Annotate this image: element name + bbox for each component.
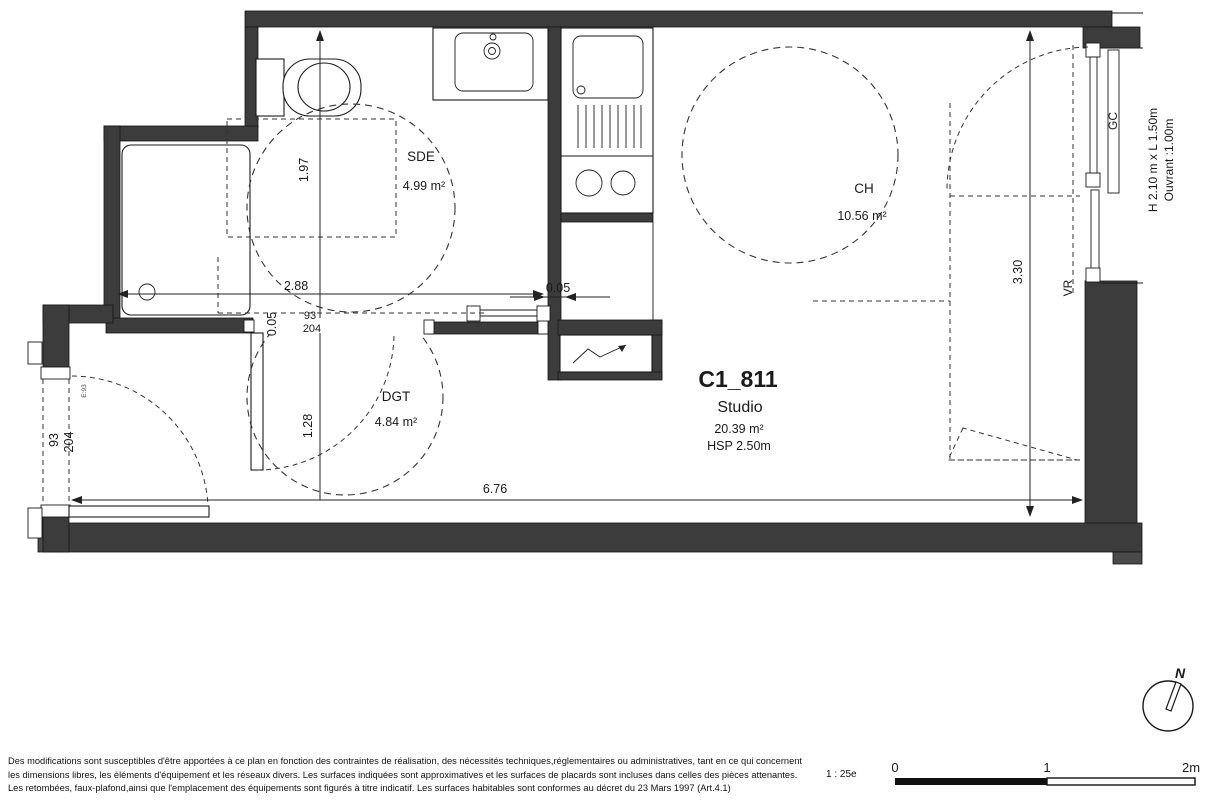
window-gc-label: GC bbox=[1106, 112, 1120, 130]
disclaimer-line3: Les retombées, faux-plafond,ainsi que l'… bbox=[8, 783, 731, 793]
dim-0-05-v: 0.05 bbox=[265, 312, 279, 336]
entry-door-frame-top bbox=[41, 367, 70, 379]
wall-band-above-ce bbox=[558, 320, 662, 335]
wall-band-under-kitchenette bbox=[561, 213, 653, 222]
dim-0-05-h: 0.05 bbox=[546, 281, 570, 295]
scale-ratio: 1 : 25e bbox=[826, 769, 857, 780]
window-handle-top bbox=[1086, 43, 1100, 57]
sde-door bbox=[251, 333, 394, 470]
disclaimer-line1: Des modifications sont susceptibles d'êt… bbox=[8, 756, 802, 766]
wall-entry-left-lower bbox=[43, 517, 69, 552]
wall-top bbox=[245, 11, 1112, 27]
kitchenette bbox=[561, 28, 653, 320]
scale-bar: 1 : 25e 0 1 2m bbox=[826, 760, 1200, 785]
sliding-wall-cap-left bbox=[424, 320, 434, 334]
toilet bbox=[256, 59, 361, 116]
window-ouvrant-label: Ouvrant :1.00m bbox=[1162, 119, 1176, 202]
window-swing-arc bbox=[947, 47, 1088, 190]
wall-sde-south bbox=[106, 318, 253, 333]
room-label-sde: SDE bbox=[407, 149, 435, 164]
unit-id: C1_811 bbox=[698, 366, 778, 392]
vanity-basin bbox=[455, 33, 533, 91]
wall-bottom bbox=[60, 523, 1142, 552]
shower bbox=[122, 145, 250, 315]
unit-hsp: HSP 2.50m bbox=[707, 439, 771, 453]
entry-door-frame-bottom bbox=[41, 505, 70, 517]
scale-bar-solid bbox=[895, 778, 1047, 785]
room-area-sde: 4.99 m² bbox=[403, 179, 445, 193]
sde-turning-circle bbox=[247, 104, 455, 312]
entry-door-height: 204 bbox=[62, 432, 76, 453]
entry-door-swing bbox=[72, 376, 208, 506]
dim-1-97: 1.97 bbox=[297, 158, 311, 182]
entry-door-leaf bbox=[69, 506, 209, 517]
wall-right-below-window bbox=[1085, 281, 1137, 527]
sde-door-frame-cap bbox=[244, 320, 254, 332]
room-label-ch: CH bbox=[854, 181, 874, 196]
floor-plan-page: SDE 4.99 m² CH 10.56 m² DGT 4.84 m² C1_8… bbox=[0, 0, 1215, 800]
unit-area: 20.39 m² bbox=[714, 422, 763, 436]
toilet-bowl bbox=[298, 63, 350, 111]
ch-turning-circle bbox=[682, 47, 898, 263]
entry-door-width: 93 bbox=[47, 433, 61, 447]
sde-door-swing bbox=[257, 333, 394, 470]
kitchen-sink-drain bbox=[577, 86, 585, 94]
room-area-ch: 10.56 m² bbox=[837, 209, 886, 223]
scale-bar-open bbox=[1047, 778, 1195, 785]
ce-box bbox=[560, 335, 652, 372]
disclaimer-line2: les dimensions libres, les éléments d'éq… bbox=[8, 770, 797, 780]
scale-1: 1 bbox=[1043, 760, 1050, 775]
kitchen-burner-left bbox=[576, 170, 602, 196]
wall-shower-left bbox=[104, 126, 120, 322]
window-fixed-pane bbox=[1091, 190, 1099, 278]
sde-door-height: 204 bbox=[303, 323, 321, 335]
sde-door-width: 93 bbox=[304, 310, 316, 322]
window-vr-label: VR bbox=[1061, 279, 1075, 296]
window-size-label: H 2.10 m x L 1.50m bbox=[1146, 108, 1160, 212]
room-label-dgt: DGT bbox=[382, 389, 411, 404]
window-handle-bottom bbox=[1086, 173, 1100, 187]
window-direction-triangle bbox=[948, 428, 1077, 460]
north-label: N bbox=[1175, 665, 1186, 681]
sliding-wall-cap-right bbox=[538, 320, 548, 334]
dim-1-28: 1.28 bbox=[301, 414, 315, 438]
vanity-tap-hole bbox=[490, 34, 496, 40]
dim-2-88: 2.88 bbox=[284, 279, 308, 293]
toilet-tank bbox=[256, 59, 284, 116]
dim-6-76: 6.76 bbox=[483, 482, 507, 496]
entry-door-tag: E:93 bbox=[81, 384, 88, 398]
vanity-faucet-center bbox=[489, 48, 496, 55]
wall-dgt-sliding bbox=[425, 322, 548, 334]
wall-shower-top bbox=[104, 126, 258, 141]
room-area-dgt: 4.84 m² bbox=[375, 415, 417, 429]
floor-plan-drawing: SDE 4.99 m² CH 10.56 m² DGT 4.84 m² C1_8… bbox=[0, 0, 1215, 800]
water-heater-box bbox=[560, 335, 652, 372]
kitchen-burner-right bbox=[611, 171, 635, 195]
exterior-tick-lower bbox=[28, 508, 42, 538]
rail-end-right bbox=[537, 306, 550, 321]
vanity-sink bbox=[433, 28, 548, 100]
compass-needle bbox=[1166, 682, 1181, 711]
north-compass: N bbox=[1143, 665, 1193, 731]
scale-0: 0 bbox=[891, 760, 898, 775]
window-frame-bottom-block bbox=[1086, 268, 1100, 282]
disclaimer: Des modifications sont susceptibles d'êt… bbox=[8, 756, 802, 793]
scale-2m: 2m bbox=[1182, 760, 1200, 775]
wall-entry-left-upper bbox=[43, 305, 69, 367]
window-opening-pane bbox=[1090, 57, 1097, 173]
wall-bottom-right-step bbox=[1113, 552, 1142, 564]
unit-type: Studio bbox=[717, 399, 762, 416]
dim-3-30: 3.30 bbox=[1011, 260, 1025, 284]
shower-drain bbox=[139, 284, 155, 300]
wall-band-below-ce bbox=[558, 372, 662, 380]
exterior-tick-upper bbox=[28, 342, 42, 364]
